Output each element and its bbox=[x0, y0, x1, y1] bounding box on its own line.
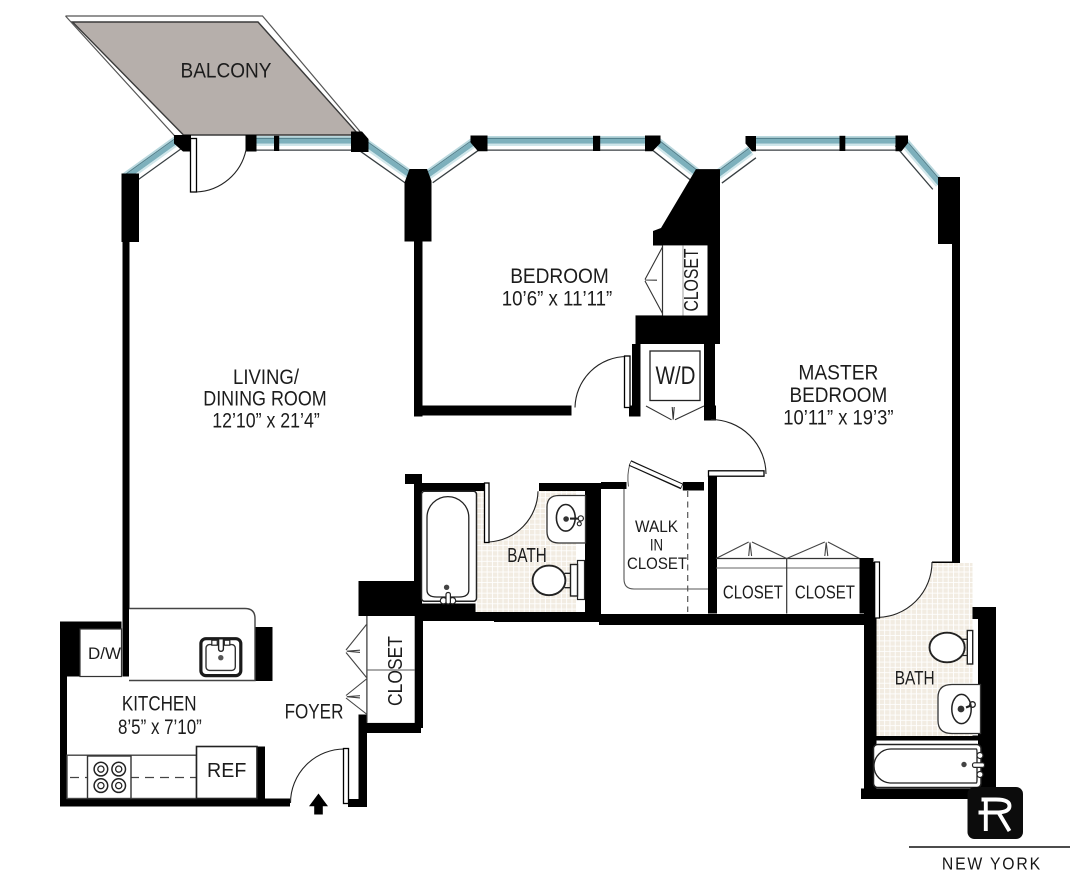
svg-text:BATH: BATH bbox=[895, 669, 935, 690]
svg-text:KITCHEN: KITCHEN bbox=[122, 693, 197, 716]
svg-text:FOYER: FOYER bbox=[285, 700, 344, 723]
svg-text:DINING ROOM: DINING ROOM bbox=[203, 388, 327, 411]
svg-text:8’5” x 7’10”: 8’5” x 7’10” bbox=[118, 716, 202, 739]
svg-text:BEDROOM: BEDROOM bbox=[510, 265, 609, 288]
svg-text:12’10” x 21’4”: 12’10” x 21’4” bbox=[212, 410, 320, 433]
svg-text:CLOSET: CLOSET bbox=[795, 583, 855, 603]
svg-text:CLOSET: CLOSET bbox=[627, 555, 687, 573]
svg-text:WALK: WALK bbox=[635, 518, 678, 536]
svg-text:10’11” x 19’3”: 10’11” x 19’3” bbox=[783, 407, 893, 430]
svg-text:NEW YORK: NEW YORK bbox=[942, 854, 1042, 874]
svg-text:D/W: D/W bbox=[88, 645, 121, 663]
svg-text:CLOSET: CLOSET bbox=[723, 583, 783, 603]
svg-text:CLOSET: CLOSET bbox=[680, 248, 703, 311]
svg-text:10’6” x 11’11”: 10’6” x 11’11” bbox=[502, 288, 613, 311]
svg-text:LIVING/: LIVING/ bbox=[233, 366, 299, 389]
svg-text:BATH: BATH bbox=[507, 545, 546, 567]
svg-text:BEDROOM: BEDROOM bbox=[790, 384, 888, 407]
svg-text:CLOSET: CLOSET bbox=[385, 636, 407, 706]
svg-text:MASTER: MASTER bbox=[798, 362, 878, 385]
svg-text:IN: IN bbox=[650, 537, 663, 555]
svg-text:REF: REF bbox=[207, 760, 246, 782]
svg-text:W/D: W/D bbox=[656, 362, 696, 390]
svg-text:BALCONY: BALCONY bbox=[181, 60, 272, 83]
